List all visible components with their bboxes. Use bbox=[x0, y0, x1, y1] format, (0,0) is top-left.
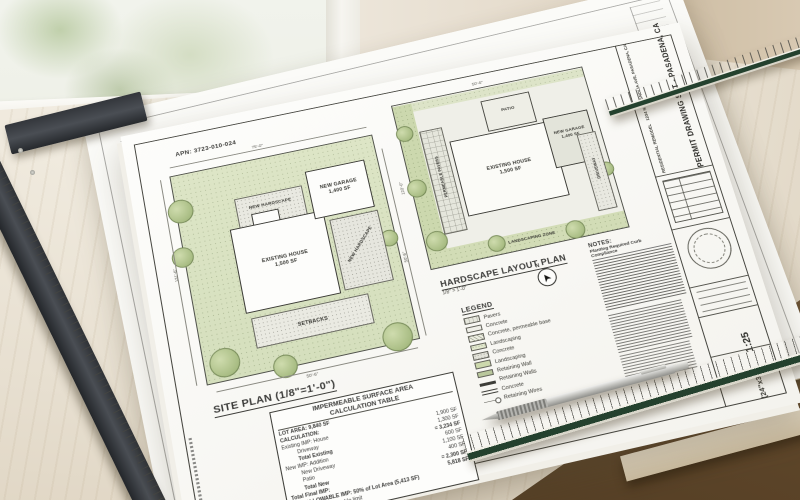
dim-left-label: 131'-6" bbox=[172, 269, 179, 283]
photo-scene: APN: 3723-010-024 EXISTING HOUSE 1,500 S… bbox=[0, 0, 800, 500]
t-square-screw bbox=[18, 148, 23, 153]
approval-seal bbox=[682, 224, 737, 273]
revision-table bbox=[662, 171, 723, 223]
dim-right-label: 50'-6" bbox=[401, 251, 408, 263]
hp-dim-top-label: 50'-6" bbox=[471, 80, 483, 86]
t-square-screw bbox=[30, 170, 35, 175]
